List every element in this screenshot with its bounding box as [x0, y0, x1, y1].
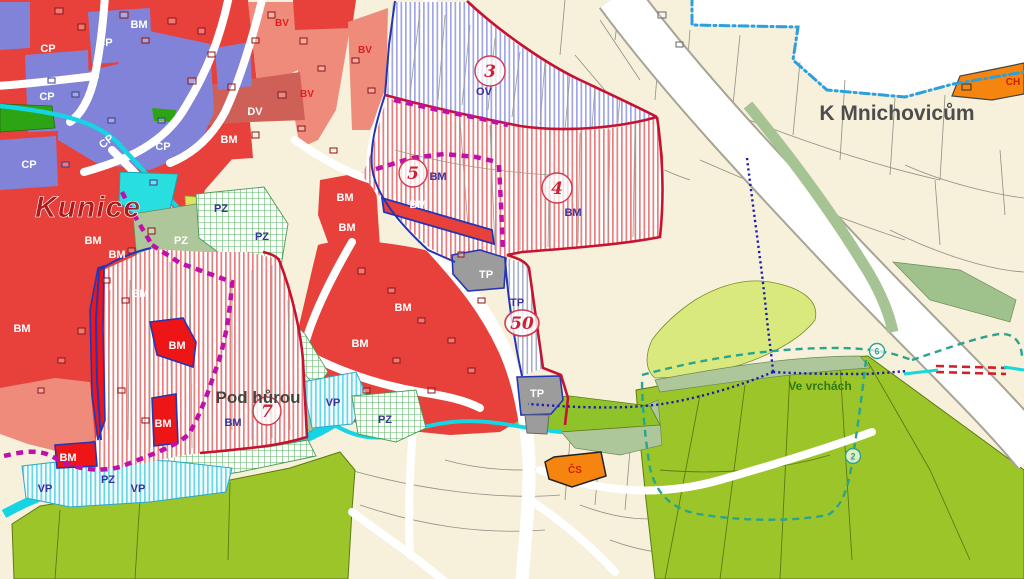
area-number-50: 50: [505, 310, 539, 336]
area-number-3: 3: [475, 56, 505, 86]
area-number-5: 5: [399, 159, 427, 187]
cp-block-1: [0, 2, 30, 50]
zone-label-bm: BM: [168, 340, 185, 352]
bm-red-top-patch: [293, 0, 356, 30]
tp-area-2b: [525, 415, 549, 434]
zone-label-bm: BM: [108, 249, 125, 261]
zone-label-cp: CP: [40, 43, 55, 55]
zone-label-bm: BM: [131, 288, 148, 300]
zone-label-bm: BM: [220, 134, 237, 146]
zoning-map: CP CP CP CP CP CP BM BM DV BV BV BV BM B…: [0, 0, 1024, 579]
svg-text:50: 50: [510, 314, 534, 334]
zone-label-pz: PZ: [214, 203, 228, 215]
zone-label-cp: CP: [39, 91, 54, 103]
zone-label-tp: TP: [510, 297, 524, 309]
zone-label-pz: PZ: [378, 414, 392, 426]
zone-label-bm: BM: [59, 452, 76, 464]
zone-label-pz: PZ: [255, 231, 269, 243]
zoning-map-canvas[interactable]: CP CP CP CP CP CP BM BM DV BV BV BV BM B…: [0, 0, 1024, 579]
zone-label-bm: BM: [130, 19, 147, 31]
zone-label-bm: BM: [336, 192, 353, 204]
zone-label-bm: BM: [564, 207, 581, 219]
zone-label-cp: CP: [155, 141, 170, 153]
zone-label-bm: BM: [429, 171, 446, 183]
svg-text:4: 4: [551, 179, 563, 199]
place-name-ve-vrchach: Ve vrchách: [788, 379, 851, 393]
zone-label-pz: PZ: [101, 474, 115, 486]
zone-label-vp: VP: [38, 483, 53, 495]
svg-text:6: 6: [874, 347, 879, 357]
zone-label-bm: BM: [154, 418, 171, 430]
svg-text:3: 3: [484, 62, 496, 82]
place-name-pod-hurou: Pod hůrou: [216, 388, 301, 407]
svg-text:2: 2: [850, 452, 855, 462]
zone-label-tp: TP: [530, 388, 544, 400]
zone-label-vp: VP: [326, 397, 341, 409]
zone-label-tp: TP: [479, 269, 493, 281]
zone-label-bm: BM: [13, 323, 30, 335]
zone-label-bm: BM: [84, 235, 101, 247]
zone-label-bm: BM: [224, 417, 241, 429]
zone-label-bm: BM: [409, 199, 426, 211]
zone-label-ov: OV: [476, 86, 493, 98]
zone-label-bm: BM: [351, 338, 368, 350]
zone-label-ch: CH: [1006, 77, 1020, 88]
svg-text:5: 5: [407, 164, 419, 184]
place-name-kunice: Kunice: [35, 191, 141, 224]
zone-label-bv: BV: [300, 89, 314, 100]
zone-label-pz: PZ: [174, 235, 188, 247]
zone-label-bm: BM: [394, 302, 411, 314]
zone-label-vp: VP: [131, 483, 146, 495]
route-number-6: 6: [870, 344, 885, 359]
zone-label-dv: DV: [247, 106, 263, 118]
route-number-2: 2: [846, 449, 861, 464]
zone-label-bv: BV: [275, 18, 289, 29]
zone-label-bv: BV: [358, 45, 372, 56]
zone-label-cp: CP: [97, 37, 112, 49]
area-number-4: 4: [542, 173, 572, 203]
place-name-k-mnichovicum: K Mnichovicům: [819, 102, 974, 125]
zone-label-cs: ČS: [568, 463, 582, 476]
zone-label-cp: CP: [21, 159, 36, 171]
zone-label-bm: BM: [338, 222, 355, 234]
